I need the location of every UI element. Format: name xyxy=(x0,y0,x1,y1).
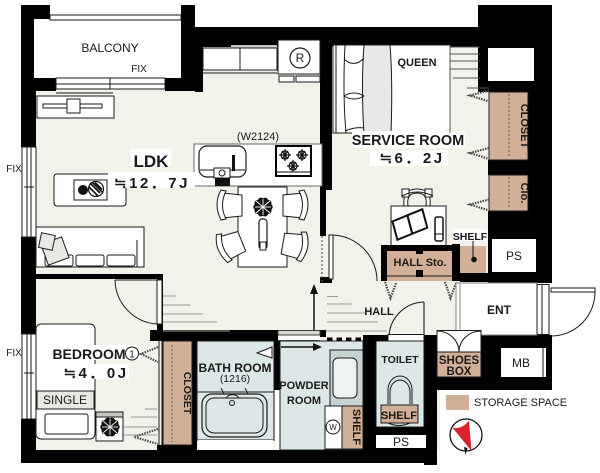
svg-text:≒12．7J: ≒12．7J xyxy=(114,175,190,192)
svg-text:FIX: FIX xyxy=(6,348,22,359)
svg-text:LDK: LDK xyxy=(134,152,170,171)
svg-text:FIX: FIX xyxy=(6,164,22,175)
svg-text:ROOM: ROOM xyxy=(287,395,321,407)
svg-text:BALCONY: BALCONY xyxy=(81,41,138,55)
svg-text:1: 1 xyxy=(129,350,135,361)
svg-text:FIX: FIX xyxy=(131,64,147,75)
svg-text:(1216): (1216) xyxy=(220,373,250,385)
svg-text:(W2124): (W2124) xyxy=(237,131,279,143)
svg-text:QUEEN: QUEEN xyxy=(397,57,436,69)
svg-text:≒6．2J: ≒6．2J xyxy=(379,150,444,167)
svg-text:Clo.: Clo. xyxy=(518,183,530,204)
svg-text:SHELF: SHELF xyxy=(381,410,417,422)
svg-text:SHELF: SHELF xyxy=(453,231,488,243)
svg-text:CLOSET: CLOSET xyxy=(181,372,193,415)
svg-text:CLOSET: CLOSET xyxy=(518,104,530,149)
svg-text:SINGLE: SINGLE xyxy=(43,393,87,407)
svg-text:POWDER: POWDER xyxy=(279,380,329,392)
svg-text:STORAGE SPACE: STORAGE SPACE xyxy=(474,397,567,409)
svg-text:BEDROOM: BEDROOM xyxy=(52,346,125,362)
svg-text:≒4．0J: ≒4．0J xyxy=(63,365,128,382)
svg-text:TOILET: TOILET xyxy=(381,354,419,366)
svg-text:SERVICE ROOM: SERVICE ROOM xyxy=(352,133,465,149)
svg-text:HALL Sto.: HALL Sto. xyxy=(394,257,447,269)
svg-text:SHELF: SHELF xyxy=(350,409,362,445)
svg-text:R: R xyxy=(296,51,305,65)
svg-text:W: W xyxy=(329,423,337,432)
svg-text:PS: PS xyxy=(393,435,409,449)
svg-text:PS: PS xyxy=(506,249,522,263)
svg-text:ENT: ENT xyxy=(487,303,512,317)
svg-text:HALL: HALL xyxy=(364,306,394,318)
svg-text:MB: MB xyxy=(512,356,530,370)
svg-text:BOX: BOX xyxy=(447,366,472,378)
